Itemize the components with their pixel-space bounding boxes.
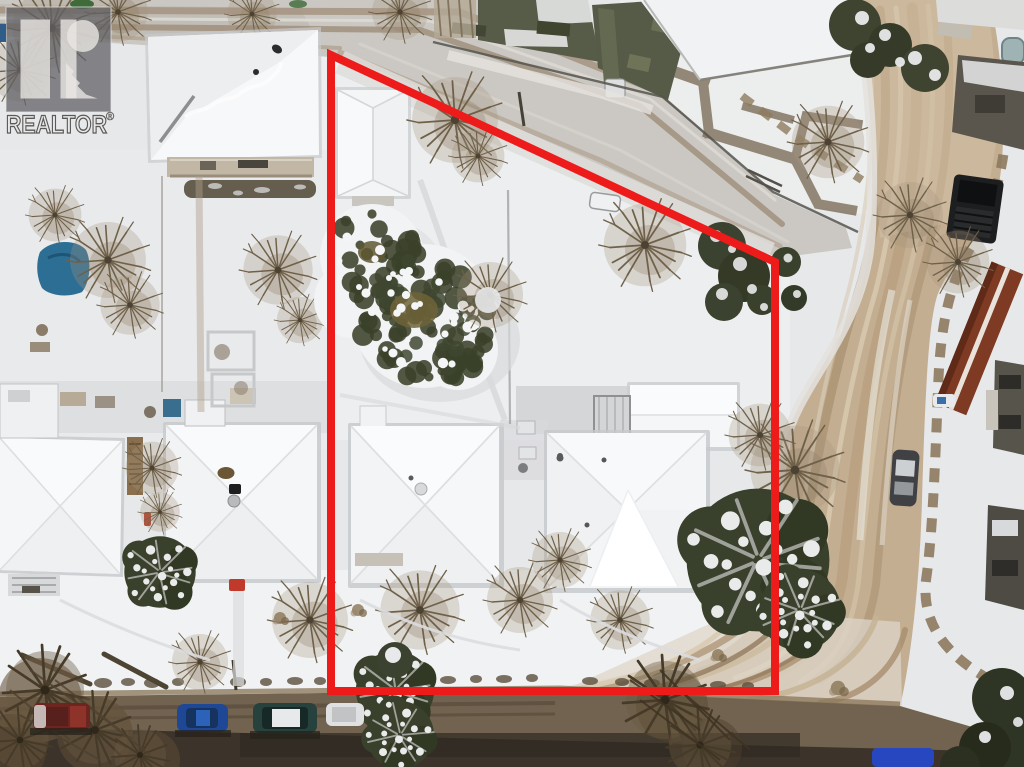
svg-text:REALTOR: REALTOR xyxy=(6,111,107,139)
svg-text:®: ® xyxy=(106,111,114,123)
